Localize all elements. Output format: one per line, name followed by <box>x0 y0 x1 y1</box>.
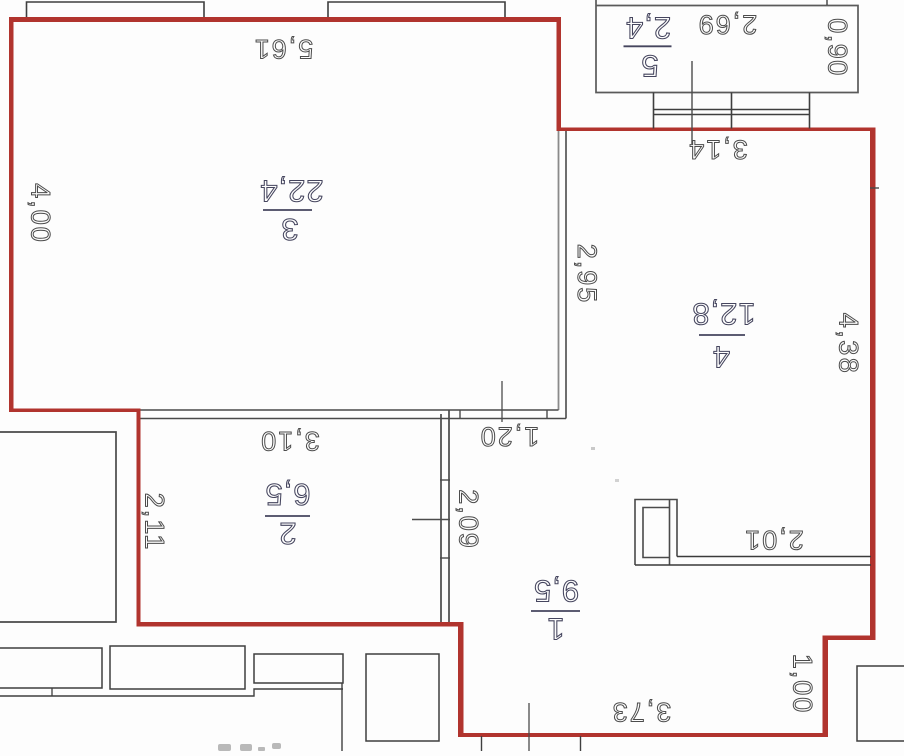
svg-text:1,00: 1,00 <box>788 654 818 715</box>
svg-text:12,8: 12,8 <box>691 297 755 332</box>
svg-text:22,4: 22,4 <box>259 174 323 209</box>
svg-text:3,73: 3,73 <box>611 697 672 727</box>
svg-text:0,90: 0,90 <box>823 18 853 77</box>
svg-text:2,11: 2,11 <box>140 493 170 552</box>
svg-text:4,00: 4,00 <box>26 183 56 244</box>
svg-text:4,38: 4,38 <box>834 313 864 376</box>
svg-text:1: 1 <box>546 612 564 647</box>
svg-text:3,10: 3,10 <box>259 426 320 456</box>
svg-text:5,61: 5,61 <box>253 34 314 64</box>
svg-text:3,14: 3,14 <box>687 135 748 165</box>
svg-text:2: 2 <box>278 516 296 551</box>
svg-text:2,01: 2,01 <box>743 525 804 555</box>
svg-text:6,5: 6,5 <box>264 477 310 512</box>
svg-text:4: 4 <box>712 340 730 375</box>
svg-text:2,09: 2,09 <box>454 489 484 550</box>
svg-text:1,20: 1,20 <box>479 422 540 452</box>
svg-text:3: 3 <box>280 212 298 247</box>
svg-text:5: 5 <box>640 49 658 84</box>
svg-text:2,69: 2,69 <box>697 10 758 40</box>
svg-text:2,4: 2,4 <box>625 11 671 46</box>
svg-text:2,95: 2,95 <box>572 244 602 305</box>
svg-text:9,5: 9,5 <box>533 574 579 609</box>
